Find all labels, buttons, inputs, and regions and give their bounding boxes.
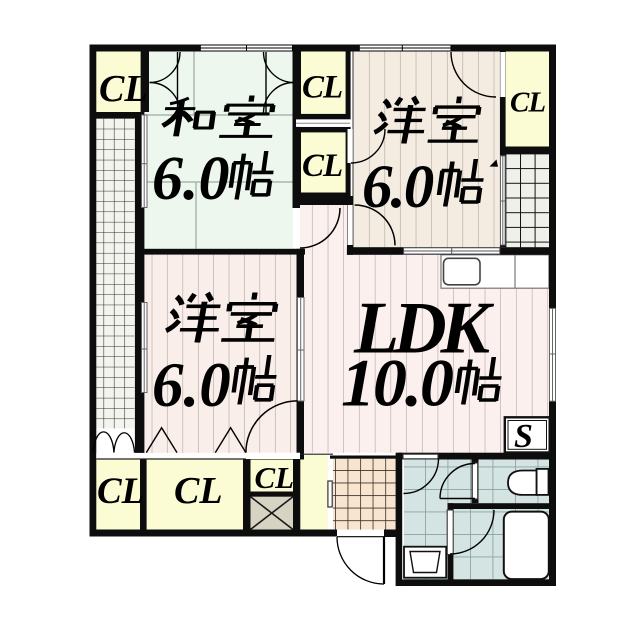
svg-text:6.0: 6.0 [152,145,230,213]
svg-text:CL: CL [302,70,342,106]
svg-text:CL: CL [97,471,144,512]
svg-text:S: S [514,418,533,455]
svg-text:6.0: 6.0 [362,154,434,221]
svg-text:CL: CL [174,470,223,512]
svg-text:CL: CL [302,148,342,184]
svg-text:CL: CL [255,460,295,495]
svg-text:CL: CL [99,68,148,110]
svg-text:CL: CL [510,87,545,119]
svg-text:6.0: 6.0 [152,350,231,420]
svg-text:10.0: 10.0 [341,345,453,421]
